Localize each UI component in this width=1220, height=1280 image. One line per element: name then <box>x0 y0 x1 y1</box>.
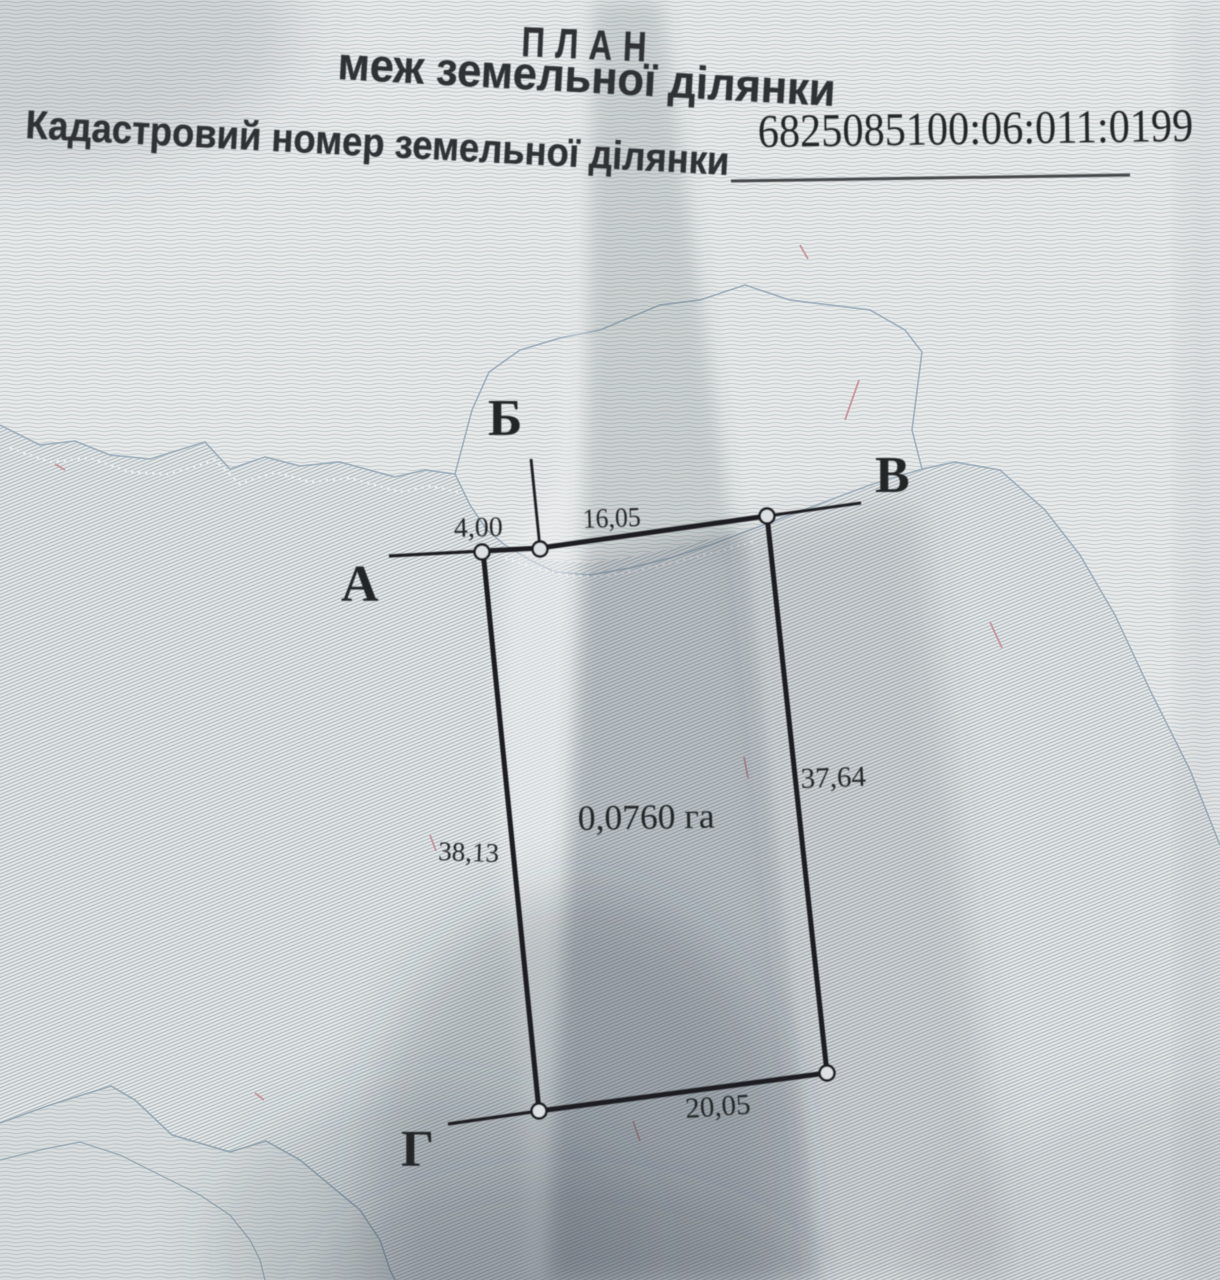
svg-text:6825085100:06:011:0199: 6825085100:06:011:0199 <box>757 99 1193 158</box>
svg-text:В: В <box>875 447 910 504</box>
svg-text:0,0760 га: 0,0760 га <box>577 796 715 838</box>
svg-text:А: А <box>341 556 379 613</box>
svg-text:Г: Г <box>401 1121 434 1178</box>
svg-text:37,64: 37,64 <box>800 761 867 795</box>
svg-text:20,05: 20,05 <box>684 1089 751 1125</box>
svg-text:16,05: 16,05 <box>582 501 641 534</box>
svg-text:4,00: 4,00 <box>453 512 503 544</box>
svg-text:38,13: 38,13 <box>438 836 500 868</box>
svg-text:Б: Б <box>488 390 522 447</box>
